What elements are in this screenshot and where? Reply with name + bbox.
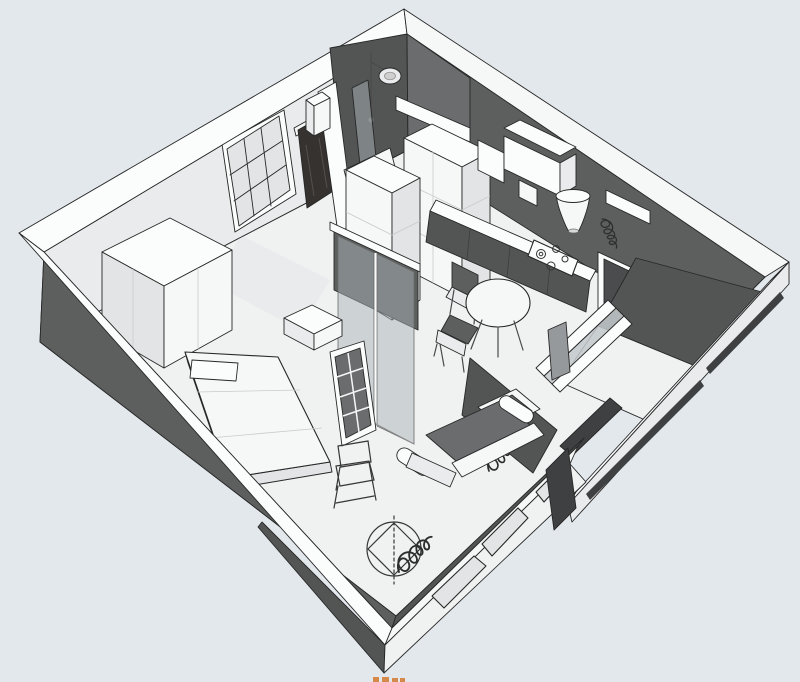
bath-block-front <box>306 100 314 136</box>
floorplan-render-stage: Axonometric cutaway 3D render of a one-r… <box>0 0 800 682</box>
open-sash <box>548 322 570 380</box>
shower-head-inner <box>385 72 396 80</box>
round-dining-table <box>466 279 530 327</box>
pillow <box>190 360 238 381</box>
watermark-glyph-4 <box>400 678 405 682</box>
watermark-glyph-1 <box>373 677 379 682</box>
hood-top <box>556 190 590 203</box>
hood-bottom <box>569 229 579 233</box>
watermark-glyph-2 <box>382 677 389 682</box>
glass-pane-2 <box>377 254 414 444</box>
apartment-3d-floorplan: Axonometric cutaway 3D render of a one-r… <box>0 0 800 682</box>
watermark-glyph-3 <box>392 678 398 682</box>
